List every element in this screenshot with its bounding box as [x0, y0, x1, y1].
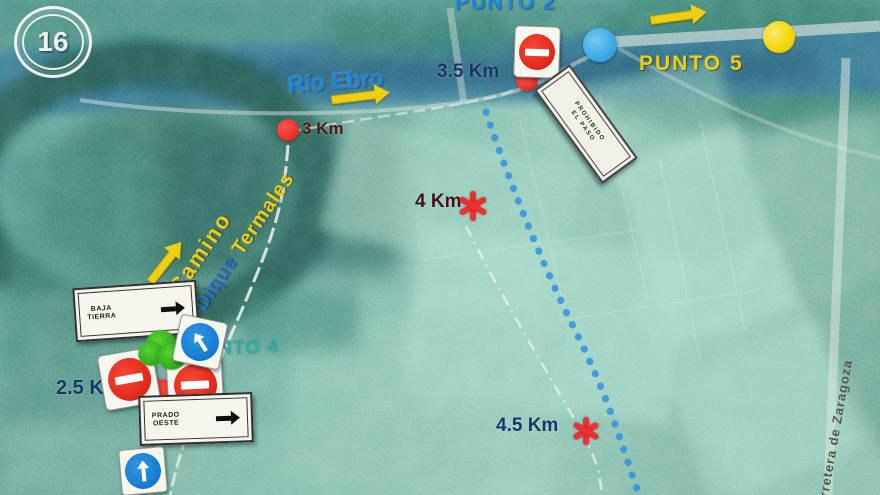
punto-5-label: PUNTO 5	[639, 52, 744, 76]
arrow-head	[136, 460, 149, 469]
arrow-shaft	[141, 468, 146, 481]
badge-number: 16	[37, 26, 68, 58]
no-entry-bar	[525, 48, 549, 56]
right-arrow-icon	[216, 410, 240, 425]
no-entry-disc	[518, 33, 555, 70]
up-left-arrow-icon	[189, 330, 211, 354]
route-line-west-tail	[170, 436, 186, 495]
mandatory-ahead-sign-icon	[118, 446, 168, 495]
up-arrow-icon	[136, 460, 150, 482]
direction-sign-2-panel: PRADO OESTE	[143, 397, 248, 441]
km-4-5-label: 4.5 Km	[496, 415, 558, 437]
arrow-shaft	[197, 339, 207, 352]
km-3-marker	[277, 119, 299, 141]
blue-disc	[123, 451, 162, 490]
bridge	[450, 8, 464, 104]
km-4-label: 4 Km	[415, 191, 461, 213]
arrow-shaft	[216, 415, 231, 421]
map-number-badge: 16	[14, 6, 92, 78]
no-entry-bar	[115, 373, 144, 386]
punto-2-marker	[583, 28, 617, 62]
km-3-5-label: 3.5 Km	[437, 61, 499, 83]
punto-2-label: PUNTO 2	[455, 0, 556, 15]
direction-sign-2-text: PRADO OESTE	[152, 412, 180, 429]
punto-5-marker	[763, 21, 795, 53]
no-entry-sign-icon	[513, 25, 561, 79]
arrow-head	[231, 410, 240, 424]
arrow-shaft	[331, 90, 376, 104]
arrow-shaft	[161, 306, 176, 312]
route-dashdot-east	[466, 226, 602, 493]
aerial-route-map: 16 Río Ebro PUNTO 2 PUNTO 5 3.5 Km PROHI…	[0, 0, 880, 495]
direction-sign-1-text: BAJA TIERRA	[87, 304, 117, 322]
sign-text-line: TIERRA	[87, 312, 117, 322]
badge-inner-ring: 16	[22, 14, 84, 70]
arrow-shaft	[650, 10, 693, 25]
km-4-marker	[458, 191, 488, 221]
km-4-5-marker	[572, 417, 600, 445]
blue-disc	[177, 319, 222, 364]
arrow-head	[374, 82, 391, 104]
no-entry-bar	[181, 380, 209, 389]
sign-text-line: OESTE	[152, 420, 180, 429]
arrow-head	[690, 2, 708, 24]
arrow-head	[175, 301, 185, 316]
direction-sign-2: PRADO OESTE	[138, 392, 254, 446]
mandatory-direction-sign-icon	[172, 314, 229, 371]
